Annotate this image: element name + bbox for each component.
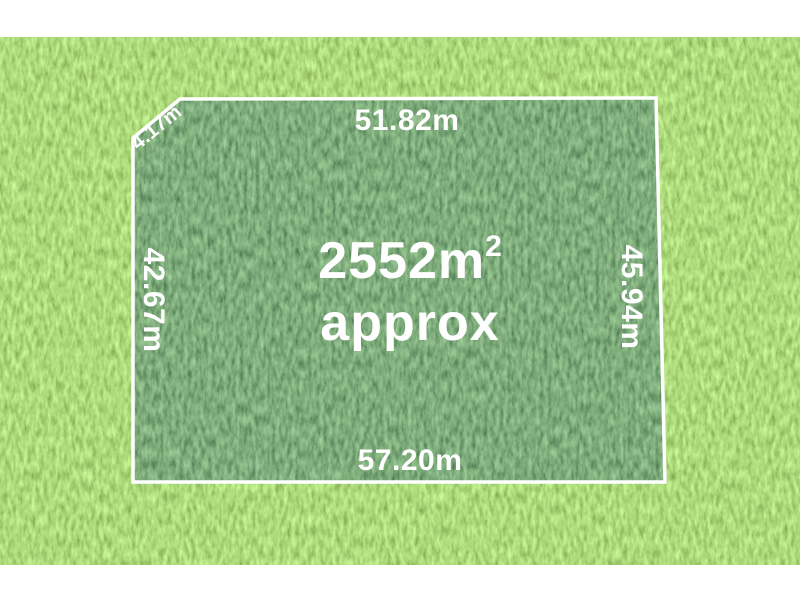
area-label: 2552m2 approx <box>318 216 502 354</box>
area-value: 2552m <box>318 232 485 290</box>
area-qualifier: approx <box>318 292 502 354</box>
area-superscript: 2 <box>485 230 502 263</box>
dimension-bottom: 57.20m <box>358 444 463 478</box>
dimension-right: 45.94m <box>614 245 648 350</box>
land-listing-image: 51.82m 57.20m 42.67m 45.94m 4.17m 2552m2… <box>0 0 800 600</box>
dimension-top: 51.82m <box>355 104 460 138</box>
grass-background: 51.82m 57.20m 42.67m 45.94m 4.17m 2552m2… <box>0 37 800 565</box>
dimension-left: 42.67m <box>136 248 170 353</box>
area-value-line: 2552m2 <box>318 216 502 292</box>
